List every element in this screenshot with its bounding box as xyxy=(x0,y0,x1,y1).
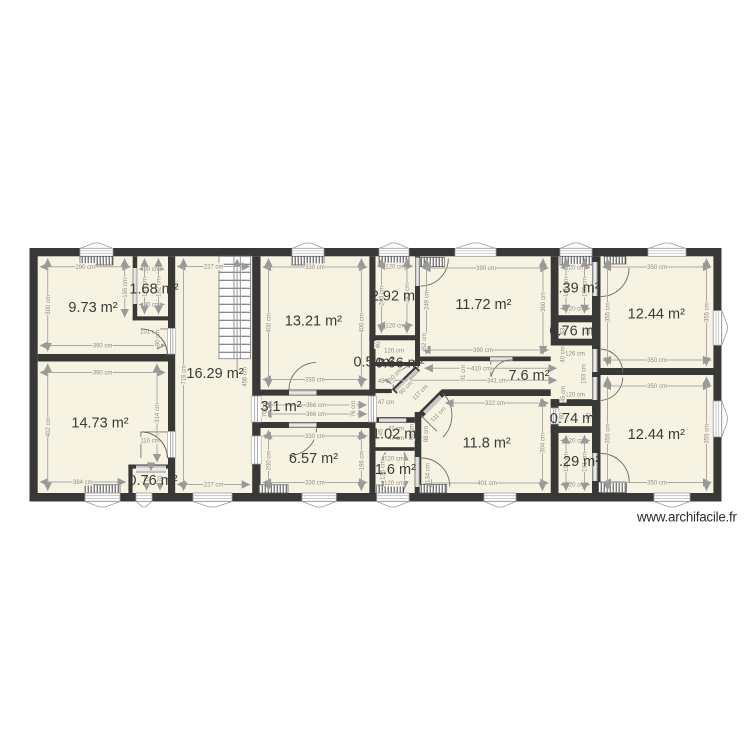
svg-text:0.76 m²: 0.76 m² xyxy=(549,324,598,340)
svg-text:200 cm: 200 cm xyxy=(267,451,273,471)
svg-text:2.39 m²: 2.39 m² xyxy=(550,281,599,297)
svg-text:12.44 m²: 12.44 m² xyxy=(628,307,685,323)
svg-text:330 cm: 330 cm xyxy=(305,434,325,440)
svg-text:350 cm: 350 cm xyxy=(647,358,667,364)
svg-text:120 cm: 120 cm xyxy=(384,481,404,487)
svg-text:355 cm: 355 cm xyxy=(705,424,711,444)
svg-text:134 cm: 134 cm xyxy=(426,463,432,483)
svg-text:330 cm: 330 cm xyxy=(305,265,325,271)
svg-text:12.44 m²: 12.44 m² xyxy=(628,427,685,443)
svg-text:227 cm: 227 cm xyxy=(204,265,224,271)
svg-text:355 cm: 355 cm xyxy=(606,302,612,322)
svg-text:91 cm: 91 cm xyxy=(461,365,467,381)
svg-text:7.6 m²: 7.6 m² xyxy=(508,368,549,384)
svg-text:40 cm: 40 cm xyxy=(561,346,567,362)
svg-text:90 cm: 90 cm xyxy=(144,267,160,273)
svg-text:11.8 m²: 11.8 m² xyxy=(463,436,511,452)
svg-text:0.66 m²: 0.66 m² xyxy=(375,356,424,372)
svg-text:390 cm: 390 cm xyxy=(473,348,493,354)
svg-text:350 cm: 350 cm xyxy=(647,481,667,487)
svg-text:1.6 m²: 1.6 m² xyxy=(375,462,416,478)
svg-text:3.1 m²: 3.1 m² xyxy=(260,399,301,415)
svg-text:120 cm: 120 cm xyxy=(385,323,405,329)
svg-text:126 cm: 126 cm xyxy=(565,352,585,358)
svg-text:76 cm: 76 cm xyxy=(351,401,357,417)
svg-text:366 cm: 366 cm xyxy=(306,403,326,409)
svg-text:1.02 m²: 1.02 m² xyxy=(372,426,421,442)
svg-text:120 cm: 120 cm xyxy=(385,264,405,270)
svg-text:249 cm: 249 cm xyxy=(425,290,431,310)
svg-text:196 cm: 196 cm xyxy=(360,451,366,471)
svg-text:355 cm: 355 cm xyxy=(705,302,711,322)
svg-text:193 cm: 193 cm xyxy=(582,364,588,384)
svg-text:390 cm: 390 cm xyxy=(93,371,113,377)
svg-text:1.68 m²: 1.68 m² xyxy=(129,282,178,298)
svg-text:300 cm: 300 cm xyxy=(46,295,52,315)
svg-text:227 cm: 227 cm xyxy=(204,483,224,489)
svg-text:401 cm: 401 cm xyxy=(477,481,497,487)
svg-text:350 cm: 350 cm xyxy=(647,265,667,271)
svg-text:2.29 m²: 2.29 m² xyxy=(551,454,600,470)
svg-text:330 cm: 330 cm xyxy=(305,481,325,487)
svg-text:390 cm: 390 cm xyxy=(476,266,496,272)
svg-text:www.archifacile.fr: www.archifacile.fr xyxy=(636,510,737,525)
svg-text:11.72 m²: 11.72 m² xyxy=(455,297,511,313)
svg-text:400 cm: 400 cm xyxy=(360,313,366,333)
svg-text:0.74 m²: 0.74 m² xyxy=(550,411,599,427)
svg-text:400 cm: 400 cm xyxy=(267,313,273,333)
svg-text:390 cm: 390 cm xyxy=(93,344,113,350)
svg-text:341 cm: 341 cm xyxy=(487,379,507,385)
svg-text:0.76 m²: 0.76 m² xyxy=(128,473,177,489)
svg-text:47 cm: 47 cm xyxy=(378,400,394,406)
svg-text:360 cm: 360 cm xyxy=(541,292,547,312)
svg-text:195 cm: 195 cm xyxy=(123,278,129,298)
svg-text:350 cm: 350 cm xyxy=(647,384,667,390)
svg-text:410 cm: 410 cm xyxy=(471,367,491,373)
svg-text:355 cm: 355 cm xyxy=(606,424,612,444)
svg-text:366 cm: 366 cm xyxy=(306,412,326,418)
svg-text:6.57 m²: 6.57 m² xyxy=(289,451,338,467)
svg-text:45 cm: 45 cm xyxy=(561,386,567,402)
svg-text:330 cm: 330 cm xyxy=(305,378,325,384)
svg-text:52 cm: 52 cm xyxy=(422,333,428,349)
svg-text:304 cm: 304 cm xyxy=(541,433,547,453)
svg-text:314 cm: 314 cm xyxy=(155,403,161,423)
svg-text:110 cm: 110 cm xyxy=(140,439,159,445)
svg-text:402 cm: 402 cm xyxy=(46,417,52,437)
svg-text:290 cm: 290 cm xyxy=(75,265,95,271)
svg-text:40: 40 xyxy=(376,341,382,348)
svg-text:384 cm: 384 cm xyxy=(73,480,93,486)
svg-text:16.29 m²: 16.29 m² xyxy=(186,366,243,382)
svg-text:88 cm: 88 cm xyxy=(424,426,430,442)
svg-text:14.73 m²: 14.73 m² xyxy=(71,416,128,432)
svg-text:2.92 m²: 2.92 m² xyxy=(371,288,420,304)
svg-text:322 cm: 322 cm xyxy=(485,401,505,407)
svg-text:13.21 m²: 13.21 m² xyxy=(285,314,342,330)
svg-text:120 cm: 120 cm xyxy=(565,393,585,399)
svg-text:9.73 m²: 9.73 m² xyxy=(68,300,117,316)
